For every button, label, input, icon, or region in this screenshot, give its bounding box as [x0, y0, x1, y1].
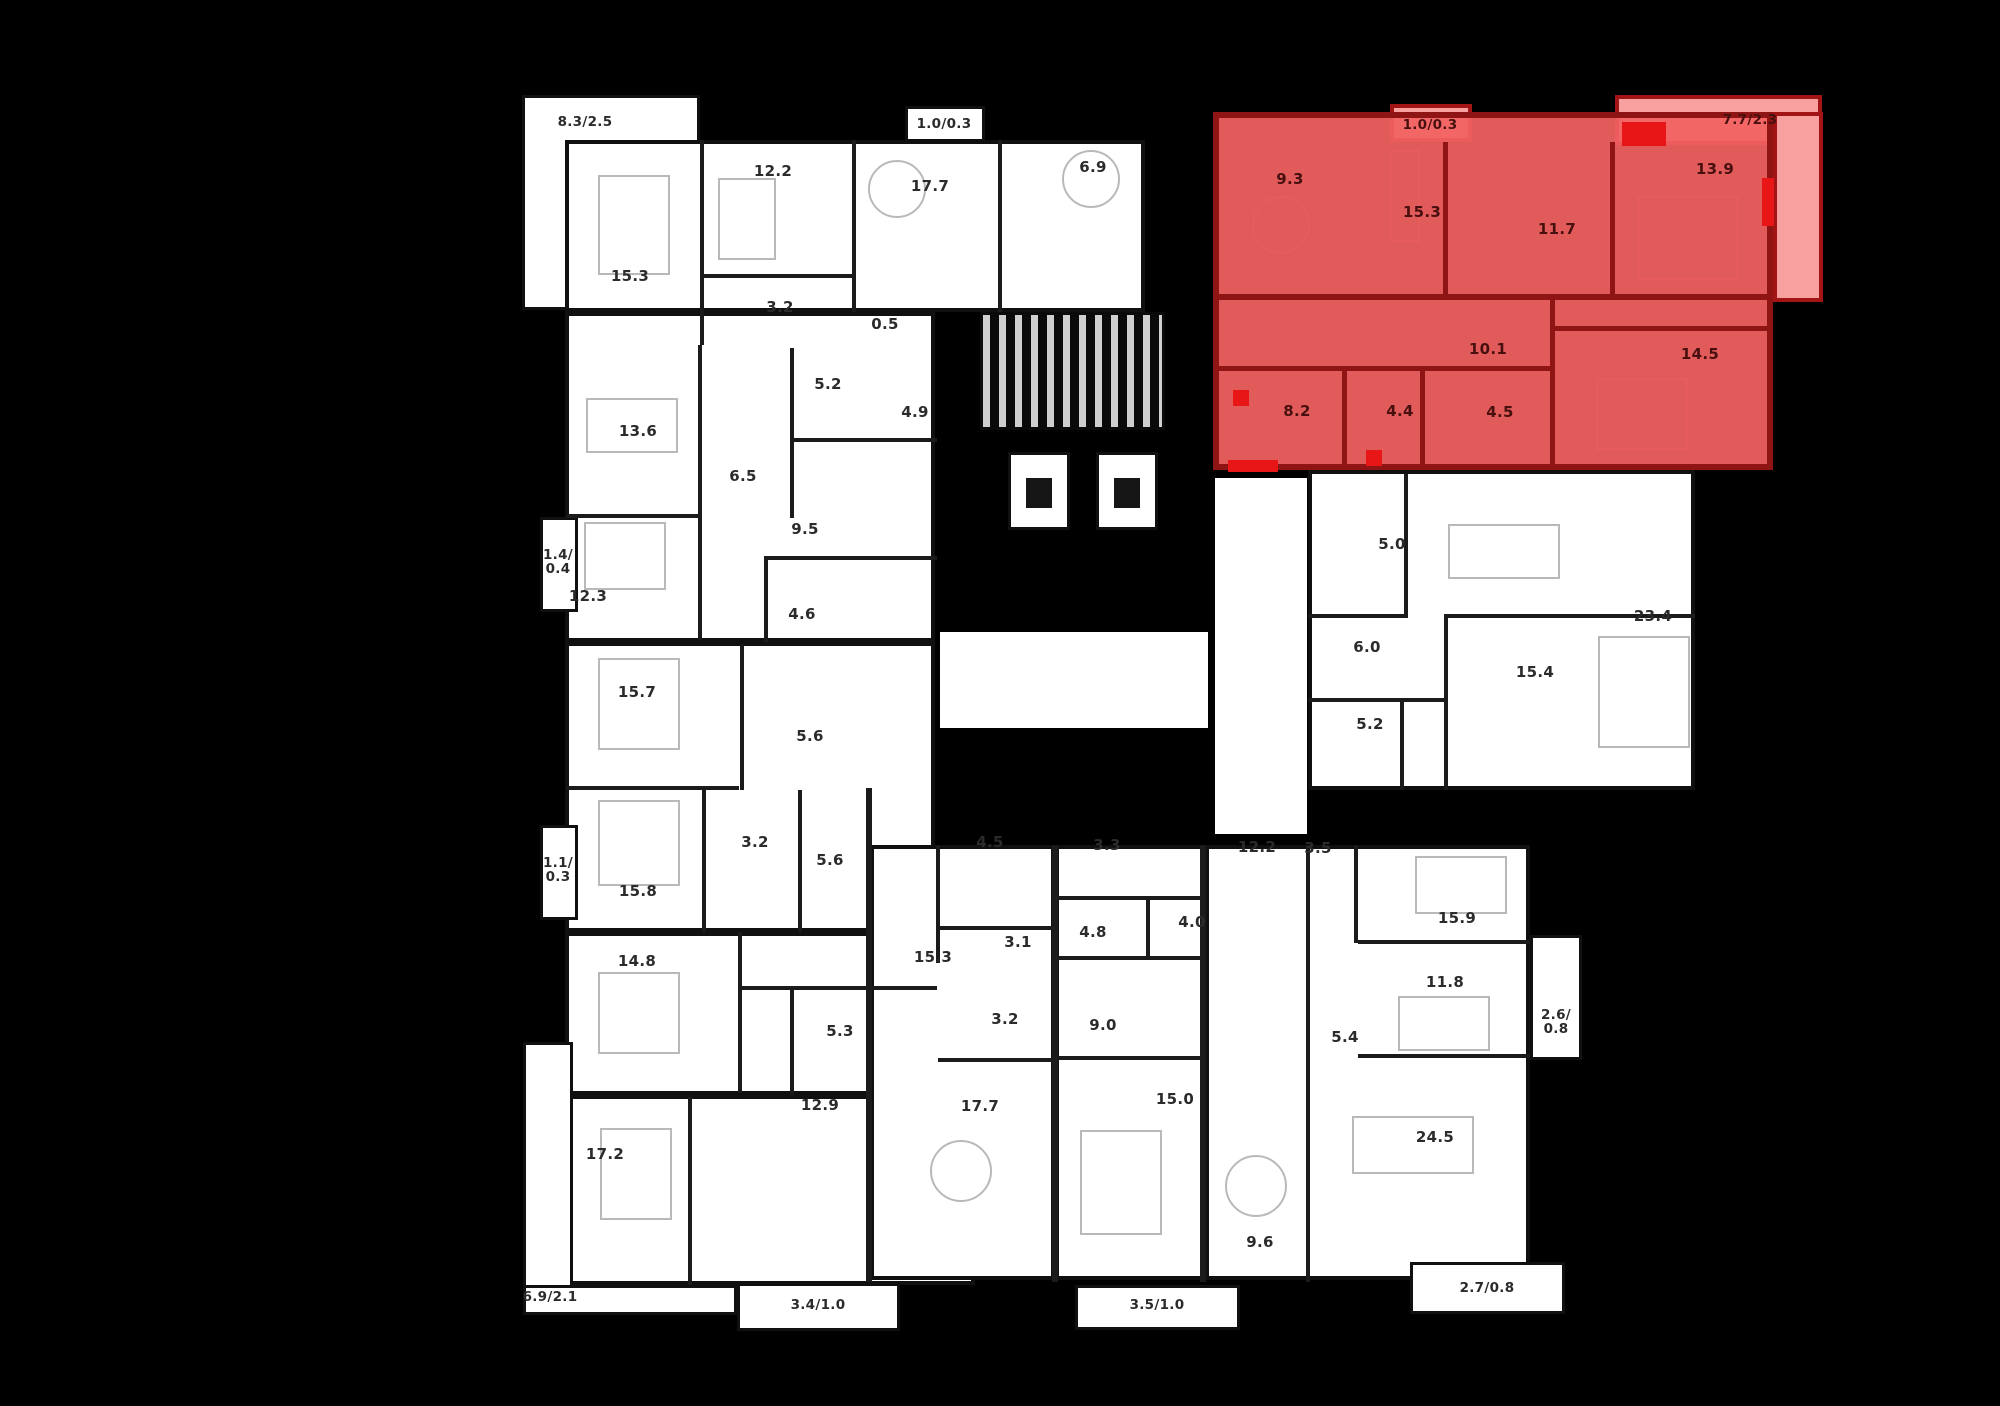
wall-segment — [1058, 956, 1202, 960]
wall-segment — [790, 990, 794, 1095]
room-area-label: 3.2 — [741, 835, 768, 851]
room-area-label: 23.4 — [1634, 609, 1672, 625]
room-area-label: 5.4 — [1331, 1030, 1358, 1046]
wall-segment — [698, 345, 702, 640]
entrance-marker — [1366, 450, 1382, 466]
room-area-label: 5.0 — [1378, 537, 1405, 553]
wall-segment — [938, 1058, 1054, 1062]
unit-floor-area — [523, 1042, 573, 1292]
room-area-label: 12.2 — [754, 164, 792, 180]
room-area-label: 3.2 — [991, 1012, 1018, 1028]
wall-segment — [700, 140, 704, 345]
furniture-outline — [584, 522, 666, 590]
highlighted-room-area-label: 14.5 — [1681, 347, 1719, 363]
wall-segment — [798, 790, 802, 932]
unit-floor-area — [1215, 478, 1307, 834]
wall-segment — [1052, 845, 1058, 1282]
furniture-outline — [718, 178, 776, 260]
wall-segment — [764, 556, 937, 560]
room-area-label: 9.0 — [1089, 1018, 1116, 1034]
highlighted-wall-segment — [1342, 368, 1347, 470]
room-area-label: 5.2 — [814, 377, 841, 393]
wall-segment — [1058, 1056, 1202, 1060]
room-area-label: 12.9 — [801, 1098, 839, 1114]
highlighted-room-area-label: 4.5 — [1486, 405, 1513, 421]
highlighted-room-area-label: 9.3 — [1276, 172, 1303, 188]
highlighted-wall-segment — [1213, 294, 1773, 300]
balcony-area-label: 2.6/ 0.8 — [1541, 1008, 1571, 1036]
room-area-label: 11.8 — [1426, 975, 1464, 991]
highlighted-room-area-label: 4.4 — [1386, 404, 1413, 420]
furniture-outline — [600, 1128, 672, 1220]
wall-segment — [1358, 1054, 1530, 1058]
staircase — [980, 312, 1165, 430]
wall-segment — [790, 348, 794, 518]
wall-segment — [1444, 614, 1448, 790]
room-area-label: 0.5 — [871, 317, 898, 333]
room-area-label: 4.9 — [901, 405, 928, 421]
room-area-label: 17.7 — [961, 1099, 999, 1115]
wall-segment — [1308, 698, 1448, 702]
room-area-label: 3.1 — [1004, 935, 1031, 951]
furniture-outline — [598, 175, 670, 275]
highlighted-room-area-label: 11.7 — [1538, 222, 1576, 238]
furniture-outline — [930, 1140, 992, 1202]
highlighted-wall-segment — [1420, 368, 1425, 470]
room-area-label: 3.3 — [1093, 838, 1120, 854]
room-area-label: 4.6 — [788, 607, 815, 623]
wall-segment — [742, 986, 937, 990]
furniture-outline — [1398, 996, 1490, 1051]
balcony-area-label: 1.0/0.3 — [917, 117, 972, 131]
furniture-outline — [1598, 636, 1690, 748]
highlighted-wall-segment — [1215, 366, 1552, 371]
wall-segment — [866, 788, 872, 1282]
room-area-label: 15.8 — [619, 884, 657, 900]
highlighted-room-area-label: 10.1 — [1469, 342, 1507, 358]
furniture-outline — [1080, 1130, 1162, 1235]
highlighted-balcony-area — [1773, 112, 1823, 302]
room-area-label: 15.9 — [1438, 911, 1476, 927]
wall-segment — [936, 845, 940, 963]
wall-segment — [1200, 845, 1206, 1282]
room-area-label: 13.6 — [619, 424, 657, 440]
wall-segment — [740, 644, 744, 790]
wall-segment — [702, 790, 706, 932]
balcony-area-label: 1.1/ 0.3 — [543, 856, 573, 884]
furniture-outline — [598, 800, 680, 886]
entrance-marker — [1233, 390, 1249, 406]
balcony-area-label: 1.4/ 0.4 — [543, 548, 573, 576]
wall-segment — [1308, 614, 1408, 618]
room-area-label: 5.3 — [826, 1024, 853, 1040]
room-area-label: 9.5 — [791, 522, 818, 538]
room-area-label: 15.7 — [618, 685, 656, 701]
wall-segment — [1146, 900, 1150, 958]
entrance-marker — [1228, 460, 1278, 472]
highlighted-wall-segment — [1443, 142, 1448, 298]
furniture-outline — [1026, 478, 1052, 508]
highlighted-room-area-label: 8.2 — [1283, 404, 1310, 420]
room-area-label: 17.2 — [586, 1147, 624, 1163]
wall-segment — [688, 1097, 692, 1285]
room-area-label: 6.9 — [1079, 160, 1106, 176]
room-area-label: 15.3 — [914, 950, 952, 966]
balcony-area-label: 2.7/0.8 — [1460, 1281, 1515, 1295]
floor-plan-canvas: 15.312.23.20.517.76.913.65.24.96.59.512.… — [0, 0, 2000, 1406]
balcony-area-label: 3.5/1.0 — [1130, 1298, 1185, 1312]
furniture-outline — [598, 658, 680, 750]
unit-floor-area — [940, 632, 1208, 728]
wall-segment — [938, 926, 1054, 930]
room-area-label: 4.8 — [1079, 925, 1106, 941]
wall-segment — [1354, 845, 1358, 943]
wall-segment — [1400, 702, 1404, 790]
room-area-label: 15.0 — [1156, 1092, 1194, 1108]
wall-segment — [764, 560, 768, 642]
room-area-label: 17.7 — [911, 179, 949, 195]
highlighted-room-area-label: 15.3 — [1403, 205, 1441, 221]
room-area-label: 9.6 — [1246, 1235, 1273, 1251]
room-area-label: 3.2 — [766, 300, 793, 316]
room-area-label: 14.8 — [618, 954, 656, 970]
wall-segment — [1358, 940, 1530, 944]
highlighted-balcony-area-label: 7.7/2.3 — [1723, 113, 1778, 127]
room-area-label: 24.5 — [1416, 1130, 1454, 1146]
balcony-area-label: 3.4/1.0 — [791, 1298, 846, 1312]
balcony-area-label: 6.9/2.1 — [523, 1290, 578, 1304]
room-area-label: 12.3 — [569, 589, 607, 605]
wall-segment — [790, 438, 937, 442]
wall-segment — [567, 786, 739, 790]
wall-segment — [998, 140, 1002, 312]
wall-segment — [738, 932, 742, 1093]
room-area-label: 5.6 — [816, 853, 843, 869]
balcony-area-label: 8.3/2.5 — [558, 115, 613, 129]
wall-segment — [1058, 896, 1202, 900]
room-area-label: 6.5 — [729, 469, 756, 485]
room-area-label: 5.2 — [1356, 717, 1383, 733]
furniture-outline — [1448, 524, 1560, 579]
room-area-label: 4.5 — [976, 835, 1003, 851]
balcony-box — [1530, 935, 1582, 1060]
highlighted-wall-segment — [1553, 326, 1773, 331]
furniture-outline — [1225, 1155, 1287, 1217]
highlighted-wall-segment — [1610, 142, 1615, 298]
room-area-label: 4.0 — [1178, 915, 1205, 931]
unit-floor-area — [870, 845, 1055, 1280]
wall-segment — [1306, 845, 1310, 1282]
room-area-label: 15.4 — [1516, 665, 1554, 681]
room-area-label: 3.5 — [1304, 841, 1331, 857]
highlighted-balcony-area-label: 1.0/0.3 — [1403, 118, 1458, 132]
wall-segment — [704, 274, 852, 278]
room-area-label: 5.6 — [796, 729, 823, 745]
room-area-label: 6.0 — [1353, 640, 1380, 656]
entrance-marker — [1622, 122, 1666, 146]
furniture-outline — [598, 972, 680, 1054]
room-area-label: 12.2 — [1238, 840, 1276, 856]
entrance-marker — [1762, 178, 1774, 226]
furniture-outline — [1352, 1116, 1474, 1174]
furniture-outline — [1114, 478, 1140, 508]
furniture-outline — [1415, 856, 1507, 914]
wall-segment — [852, 140, 856, 312]
room-area-label: 15.3 — [611, 269, 649, 285]
wall-segment — [567, 514, 700, 518]
highlighted-room-area-label: 13.9 — [1696, 162, 1734, 178]
